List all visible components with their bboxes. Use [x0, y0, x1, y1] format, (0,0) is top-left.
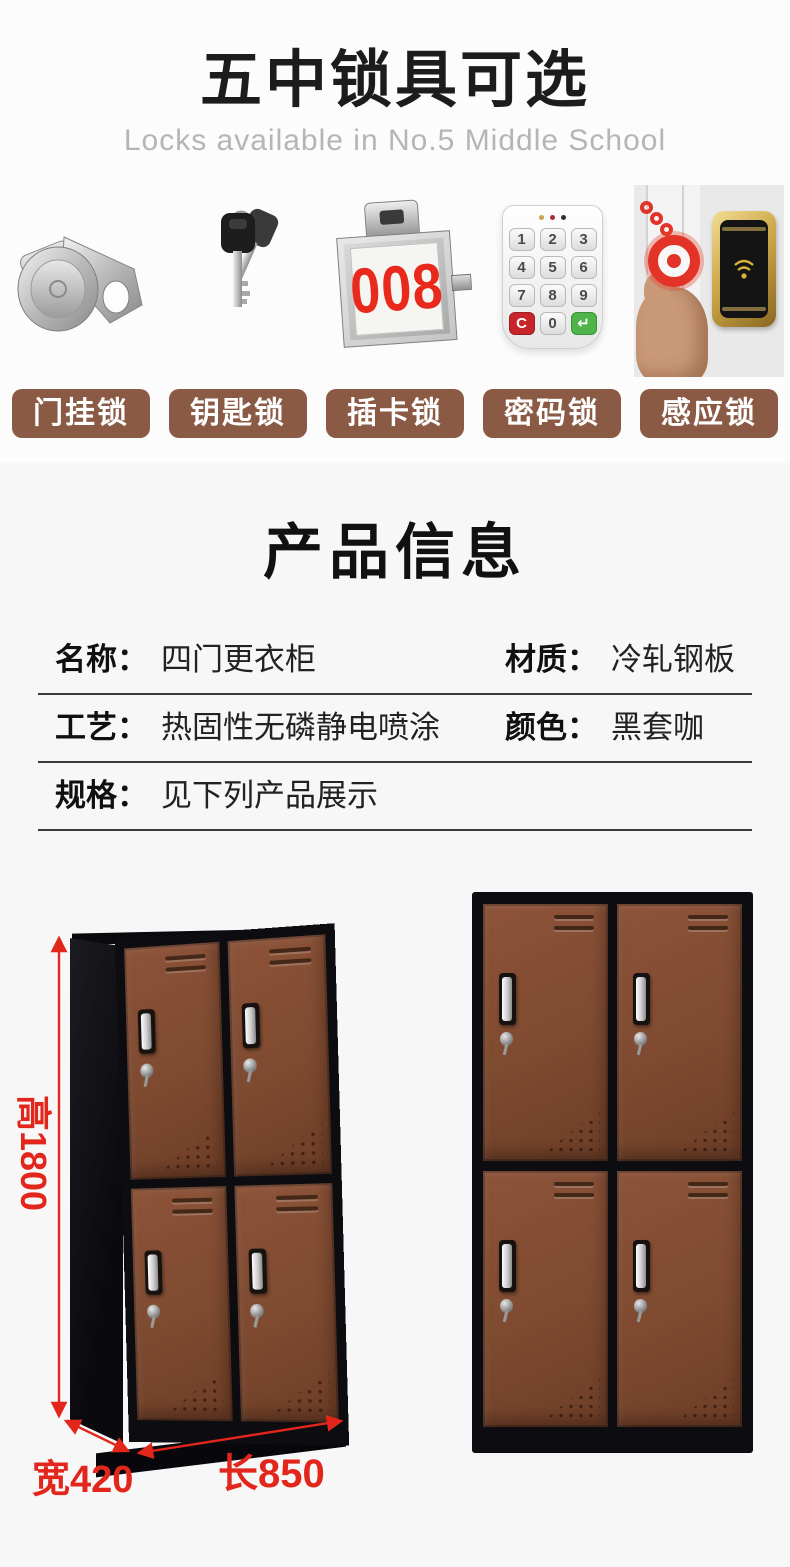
spec-value: 四门更衣柜 — [161, 641, 316, 678]
led-indicator — [539, 215, 544, 220]
locker-3d-view — [58, 924, 368, 1484]
door-handle — [138, 1009, 156, 1054]
door-vent-louvers — [165, 954, 206, 979]
spec-label: 规格： — [55, 777, 148, 814]
cam-lock-illustration — [6, 185, 156, 377]
keypad-key-5: 5 — [540, 256, 566, 279]
locker-side-panel — [70, 932, 123, 1444]
door-keyhole — [147, 1304, 160, 1318]
door-keyhole — [140, 1063, 153, 1078]
door-vent-louvers — [554, 1182, 594, 1204]
spec-table: 名称： 四门更衣柜 材质： 冷轧钢板 工艺： 热固性无磷静电喷涂 颜色： 黑套咖 — [38, 627, 752, 831]
spec-label: 颜色： — [505, 709, 598, 746]
spec-cell: 规格： 见下列产品展示 — [55, 777, 505, 814]
hand — [636, 287, 708, 377]
locker-door — [124, 942, 225, 1180]
keypad-key-9: 9 — [571, 284, 597, 307]
door-perforations — [168, 1368, 224, 1413]
door-keyhole — [634, 1299, 647, 1313]
keypad-grid: 1 2 3 4 5 6 7 8 9 C 0 ↵ — [503, 228, 602, 335]
badge-hasp-lock: 门挂锁 — [12, 389, 150, 438]
keypad-body: 1 2 3 4 5 6 7 8 9 C 0 ↵ — [502, 205, 603, 349]
spec-value: 黑套咖 — [611, 709, 704, 746]
spec-value: 热固性无磷静电喷涂 — [161, 709, 440, 746]
section-title: 五中锁具可选 — [0, 0, 790, 115]
signal-icon — [727, 253, 761, 283]
locker-door — [131, 1186, 232, 1421]
door-perforations — [546, 1109, 600, 1153]
badge-password-lock: 密码锁 — [483, 389, 621, 438]
keys-illustration — [163, 185, 313, 377]
section-subtitle: Locks available in No.5 Middle School — [0, 123, 790, 159]
spec-value: 冷轧钢板 — [611, 641, 735, 678]
key-lock-photo — [163, 185, 313, 377]
lock-photos-row: 008 1 2 3 — [0, 185, 790, 377]
locker-door — [227, 934, 332, 1176]
password-lock-photo: 1 2 3 4 5 6 7 8 9 C 0 ↵ — [477, 185, 627, 377]
rfid-scene — [634, 185, 784, 377]
spec-label: 工艺： — [55, 709, 148, 746]
gold-rfid-lock — [712, 211, 776, 327]
card-lock-photo: 008 — [320, 185, 470, 377]
product-detail-page: 五中锁具可选 Locks available in No.5 Middle Sc… — [0, 0, 790, 1567]
door-perforations — [546, 1375, 600, 1419]
keypad-key-6: 6 — [571, 256, 597, 279]
led-indicator — [561, 215, 566, 220]
spec-value: 见下列产品展示 — [161, 777, 378, 814]
door-handle — [248, 1249, 267, 1294]
spec-row: 规格： 见下列产品展示 — [38, 763, 752, 831]
lock-text-line — [722, 307, 766, 311]
door-handle — [241, 1003, 260, 1049]
door-vent-louvers — [688, 1182, 728, 1204]
door-keyhole — [634, 1032, 647, 1046]
locker-door — [617, 1171, 742, 1428]
locker-front-face — [115, 923, 349, 1445]
locker-door — [234, 1183, 339, 1422]
led-indicator — [550, 215, 555, 220]
door-keyhole — [243, 1058, 257, 1073]
height-dimension-label: 高1800 — [10, 1087, 62, 1219]
keypad-leds — [503, 215, 602, 220]
door-perforations — [680, 1375, 734, 1419]
spec-cell: 工艺： 热固性无磷静电喷涂 — [55, 709, 505, 746]
door-vent-louvers — [269, 947, 311, 972]
product-info-title: 产品信息 — [0, 463, 790, 583]
door-vent-louvers — [554, 915, 594, 937]
number-lock-face: 008 — [336, 231, 457, 349]
door-handle — [633, 1240, 650, 1292]
badge-induction-lock: 感应锁 — [640, 389, 778, 438]
spec-cell: 材质： 冷轧钢板 — [505, 641, 735, 678]
lock-text-line — [722, 227, 766, 231]
number-plate-digits: 008 — [348, 250, 446, 329]
door-vent-louvers — [276, 1195, 318, 1219]
lock-latch — [451, 274, 472, 291]
spec-label: 材质： — [505, 641, 598, 678]
length-dimension-label: 长850 — [218, 1441, 325, 1499]
keypad-key-0: 0 — [540, 312, 566, 335]
locker-door — [483, 1171, 608, 1428]
door-perforations — [272, 1368, 330, 1414]
keypad-key-3: 3 — [571, 228, 597, 251]
door-handle — [633, 973, 650, 1025]
locker-door — [483, 904, 608, 1161]
lock-type-badges: 门挂锁 钥匙锁 插卡锁 密码锁 感应锁 — [0, 389, 790, 438]
badge-key-lock: 钥匙锁 — [169, 389, 307, 438]
keypad-key-2: 2 — [540, 228, 566, 251]
spec-row: 名称： 四门更衣柜 材质： 冷轧钢板 — [38, 627, 752, 695]
door-handle — [145, 1251, 163, 1295]
door-vent-louvers — [688, 915, 728, 937]
keypad-key-8: 8 — [540, 284, 566, 307]
locker-front-view — [472, 892, 753, 1453]
badge-card-lock: 插卡锁 — [326, 389, 464, 438]
width-dimension-label: 宽420 — [32, 1448, 133, 1503]
spec-row: 工艺： 热固性无磷静电喷涂 颜色： 黑套咖 — [38, 695, 752, 763]
cam-lock-photo — [6, 185, 156, 377]
number-lock-body: 008 — [331, 197, 461, 357]
locker-door — [617, 904, 742, 1161]
spec-label: 名称： — [55, 641, 148, 678]
spec-cell: 名称： 四门更衣柜 — [55, 641, 505, 678]
keypad-key-4: 4 — [509, 256, 535, 279]
door-keyhole — [250, 1303, 264, 1317]
door-keyhole — [500, 1299, 513, 1313]
induction-lock-photo — [634, 185, 784, 377]
keypad-key-enter: ↵ — [571, 312, 597, 335]
locks-section: 五中锁具可选 Locks available in No.5 Middle Sc… — [0, 0, 790, 463]
door-handle — [499, 973, 516, 1025]
number-plate: 008 — [350, 242, 444, 336]
keypad-key-clear: C — [509, 312, 535, 335]
door-perforations — [161, 1124, 217, 1170]
door-keyhole — [500, 1032, 513, 1046]
door-perforations — [266, 1120, 324, 1167]
door-vent-louvers — [171, 1198, 212, 1221]
keypad-key-1: 1 — [509, 228, 535, 251]
door-handle — [499, 1240, 516, 1292]
spec-cell: 颜色： 黑套咖 — [505, 709, 704, 746]
keypad-key-7: 7 — [509, 284, 535, 307]
door-perforations — [680, 1109, 734, 1153]
